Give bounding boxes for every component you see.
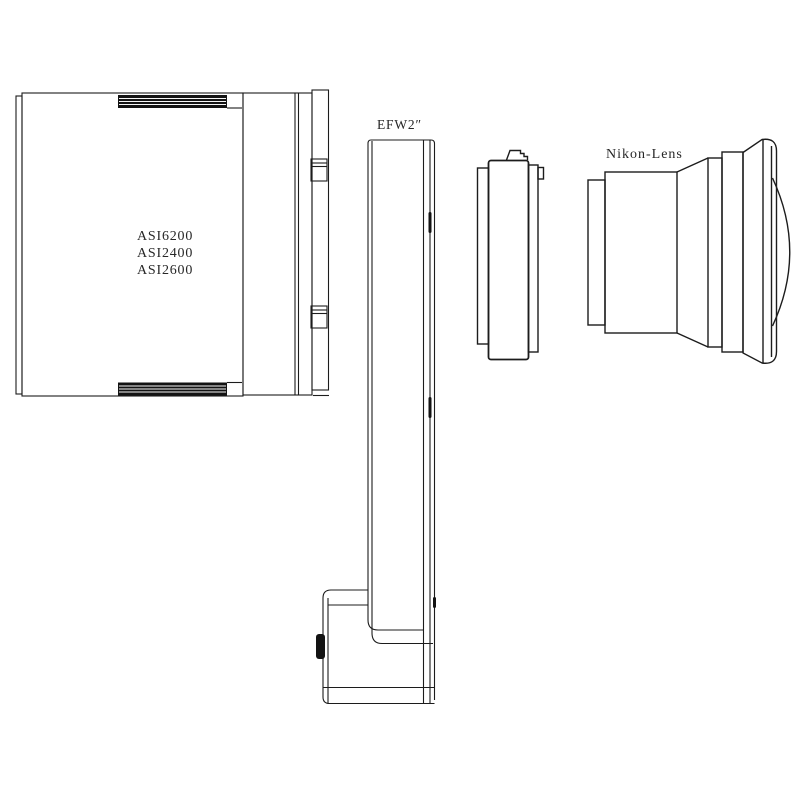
filter-wheel-screw-hub xyxy=(433,597,436,608)
adapter-front-flange xyxy=(529,165,539,352)
nikon-lens-body xyxy=(588,139,790,363)
camera-clamp-lug-top xyxy=(311,159,327,181)
camera-heatsink-bottom xyxy=(118,383,242,396)
adapter-rear-flange xyxy=(478,168,489,344)
lens-ring-inner xyxy=(708,158,722,347)
filter-wheel-usb-port xyxy=(316,634,325,659)
filter-wheel-label: EFW2″ xyxy=(377,117,422,132)
lens-ring-outer xyxy=(722,152,743,352)
camera-model-label-3: ASI2600 xyxy=(137,263,193,278)
camera-front-plate xyxy=(22,93,243,396)
lens-label: Nikon-Lens xyxy=(606,147,683,162)
adapter-side-lug xyxy=(538,168,544,180)
camera-clamp-lug-bottom xyxy=(311,306,327,328)
lens-barrel xyxy=(605,172,677,333)
camera-model-label-1: ASI6200 xyxy=(137,229,193,244)
adapter-main-body xyxy=(489,161,529,360)
filter-wheel-screw-top xyxy=(429,212,432,233)
camera-model-label-2: ASI2400 xyxy=(137,246,193,261)
filter-wheel-screw-bottom xyxy=(429,397,432,418)
camera-mid-section xyxy=(243,93,312,395)
camera-tilt-plate xyxy=(312,90,329,390)
lens-rear-mount xyxy=(588,180,605,325)
nikon-adapter xyxy=(478,151,544,360)
adapter-release-tab xyxy=(507,151,528,161)
filter-wheel-body xyxy=(368,140,436,703)
filter-wheel-hub-housing xyxy=(316,590,435,704)
camera-heatsink-top xyxy=(118,95,242,108)
camera-left-cap xyxy=(16,96,22,394)
assembly-diagram: ASI6200 ASI2400 ASI2600 EFW2″ Nikon-Lens xyxy=(0,0,800,800)
lens-front-glass xyxy=(773,178,790,326)
